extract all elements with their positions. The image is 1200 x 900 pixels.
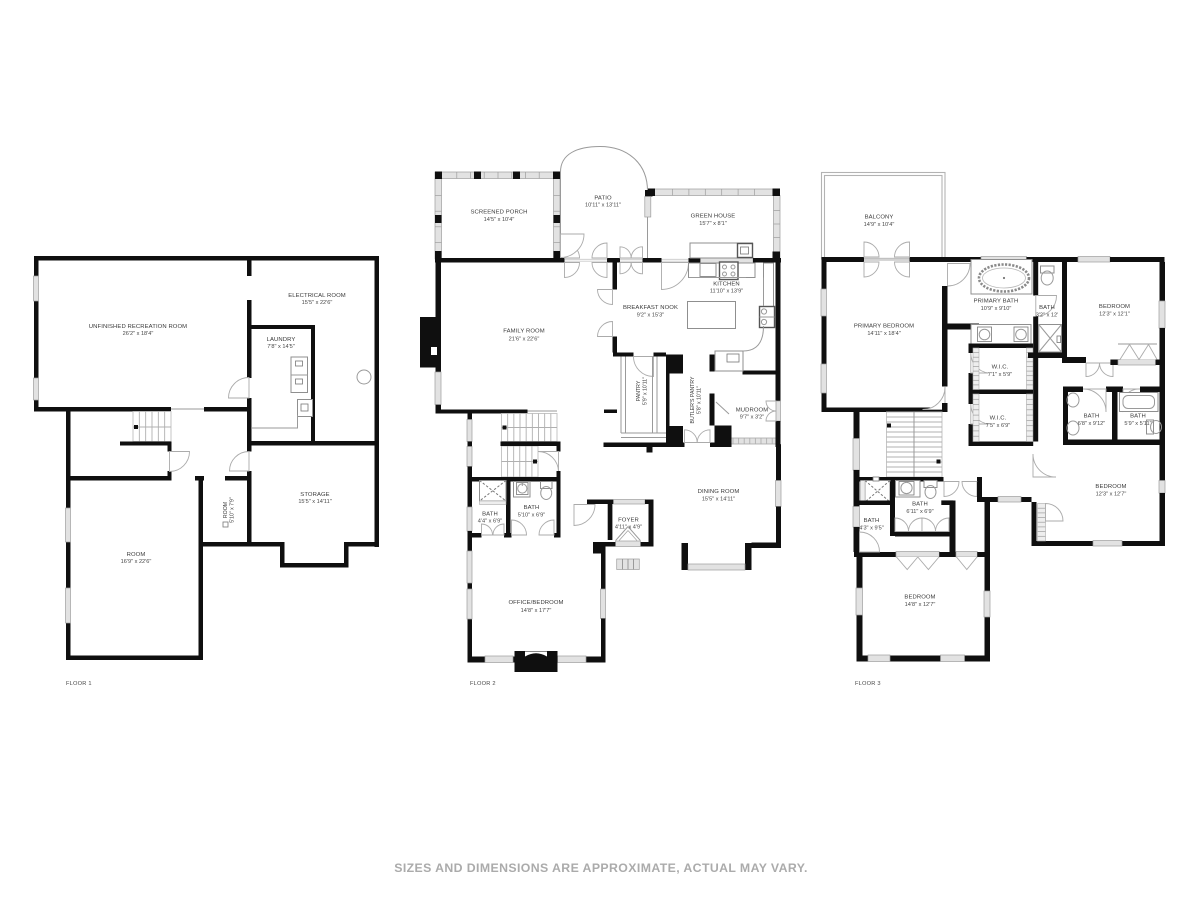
svg-text:FLOOR 3: FLOOR 3	[855, 681, 881, 687]
svg-text:10'9" x 9'10": 10'9" x 9'10"	[981, 306, 1012, 312]
svg-text:GREEN HOUSE: GREEN HOUSE	[691, 214, 736, 220]
svg-text:BATH: BATH	[864, 518, 880, 524]
svg-text:BATH: BATH	[912, 502, 928, 508]
svg-text:BATH: BATH	[1039, 305, 1055, 311]
svg-text:W.I.C.: W.I.C.	[990, 416, 1007, 422]
svg-text:FLOOR 1: FLOOR 1	[66, 681, 92, 687]
svg-text:UNFINISHED RECREATION ROOM: UNFINISHED RECREATION ROOM	[89, 324, 187, 330]
svg-text:5'8" x 10'11": 5'8" x 10'11"	[696, 386, 702, 414]
svg-text:15'5" x 22'6": 15'5" x 22'6"	[302, 300, 333, 306]
svg-text:4'11" x 4'9": 4'11" x 4'9"	[615, 525, 642, 531]
svg-text:5'10" x 7'9": 5'10" x 7'9"	[229, 497, 235, 523]
svg-text:PRIMARY BATH: PRIMARY BATH	[974, 299, 1019, 305]
svg-text:W.I.C.: W.I.C.	[992, 365, 1009, 371]
svg-text:14'11" x 18'4": 14'11" x 18'4"	[867, 331, 900, 337]
svg-text:6'8" x 9'12": 6'8" x 9'12"	[1078, 421, 1106, 427]
svg-text:9'2" x 15'3": 9'2" x 15'3"	[637, 313, 665, 319]
svg-text:10'11" x 13'11": 10'11" x 13'11"	[585, 203, 621, 209]
svg-text:12'3" x 12'1": 12'3" x 12'1"	[1099, 312, 1130, 318]
svg-text:9'7" x 3'2": 9'7" x 3'2"	[740, 415, 764, 421]
svg-text:PANTRY: PANTRY	[636, 380, 642, 401]
svg-text:SIZES AND DIMENSIONS ARE APPRO: SIZES AND DIMENSIONS ARE APPROXIMATE, AC…	[394, 861, 808, 875]
svg-text:11'10" x 13'9": 11'10" x 13'9"	[710, 289, 743, 295]
svg-text:26'2" x 18'4": 26'2" x 18'4"	[123, 331, 154, 337]
svg-text:5'9" x 5'11": 5'9" x 5'11"	[1124, 421, 1151, 427]
svg-text:7'8" x 14'5": 7'8" x 14'5"	[267, 344, 295, 350]
svg-text:7'5" x 6'9": 7'5" x 6'9"	[986, 423, 1010, 429]
svg-text:BREAKFAST NOOK: BREAKFAST NOOK	[623, 305, 678, 311]
svg-text:BATH: BATH	[1084, 414, 1100, 420]
svg-text:FLOOR 2: FLOOR 2	[470, 681, 496, 687]
svg-text:6'11" x 6'9": 6'11" x 6'9"	[906, 509, 933, 515]
svg-text:LAUNDRY: LAUNDRY	[267, 337, 296, 343]
svg-text:4'3" x 9'5": 4'3" x 9'5"	[859, 526, 883, 532]
svg-text:15'5" x 14'11": 15'5" x 14'11"	[298, 499, 331, 505]
svg-text:BATH: BATH	[482, 512, 498, 518]
svg-text:SCREENED PORCH: SCREENED PORCH	[470, 210, 527, 216]
svg-text:15'5" x 14'11": 15'5" x 14'11"	[702, 497, 735, 503]
svg-text:5'9" x 10'11": 5'9" x 10'11"	[642, 377, 648, 405]
svg-text:PATIO: PATIO	[594, 196, 612, 202]
svg-text:ELECTRICAL ROOM: ELECTRICAL ROOM	[288, 293, 346, 299]
svg-text:4'4" x 6'9": 4'4" x 6'9"	[478, 519, 502, 525]
svg-text:15'7" x 8'1": 15'7" x 8'1"	[699, 221, 727, 227]
svg-text:3'2" x 12': 3'2" x 12'	[1036, 313, 1058, 319]
svg-text:OFFICE/BEDROOM: OFFICE/BEDROOM	[508, 600, 563, 606]
svg-text:FOYER: FOYER	[618, 518, 639, 524]
svg-text:BEDROOM: BEDROOM	[904, 595, 935, 601]
svg-text:FAMILY ROOM: FAMILY ROOM	[503, 329, 544, 335]
svg-text:14'9" x 10'4": 14'9" x 10'4"	[864, 222, 895, 228]
svg-text:7'1" x 5'9": 7'1" x 5'9"	[988, 372, 1012, 378]
svg-text:BATH: BATH	[524, 505, 540, 511]
svg-text:BALCONY: BALCONY	[865, 215, 894, 221]
svg-text:14'8" x 17'7": 14'8" x 17'7"	[521, 608, 552, 614]
svg-text:16'9" x 22'6": 16'9" x 22'6"	[121, 559, 152, 565]
svg-text:12'3" x 12'7": 12'3" x 12'7"	[1096, 492, 1127, 498]
svg-text:14'8" x 12'7": 14'8" x 12'7"	[905, 602, 936, 608]
svg-text:DINING ROOM: DINING ROOM	[698, 489, 740, 495]
svg-text:KITCHEN: KITCHEN	[713, 282, 740, 288]
svg-text:BEDROOM: BEDROOM	[1095, 484, 1126, 490]
svg-text:MUDROOM: MUDROOM	[736, 408, 768, 414]
svg-text:21'6" x 22'6": 21'6" x 22'6"	[509, 337, 540, 343]
svg-text:ROOM: ROOM	[127, 552, 146, 558]
svg-text:ROOM: ROOM	[223, 502, 229, 518]
svg-text:14'5" x 10'4": 14'5" x 10'4"	[484, 217, 515, 223]
svg-text:STORAGE: STORAGE	[300, 492, 329, 498]
svg-text:5'10" x 6'9": 5'10" x 6'9"	[518, 513, 546, 519]
svg-text:BUTLER'S PANTRY: BUTLER'S PANTRY	[690, 376, 696, 423]
svg-text:BATH: BATH	[1130, 414, 1146, 420]
svg-text:BEDROOM: BEDROOM	[1099, 304, 1130, 310]
svg-text:PRIMARY BEDROOM: PRIMARY BEDROOM	[854, 324, 914, 330]
